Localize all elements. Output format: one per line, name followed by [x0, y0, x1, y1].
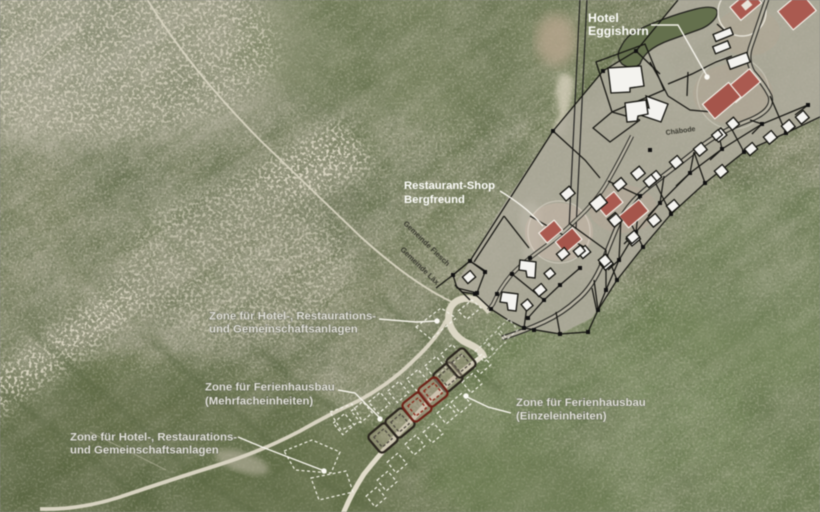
svg-text:Eggishorn: Eggishorn: [588, 24, 649, 38]
svg-text:(Mehrfacheinheiten): (Mehrfacheinheiten): [205, 396, 313, 408]
svg-text:(Einzeleinheiten): (Einzeleinheiten): [516, 411, 607, 423]
svg-text:und Gemeinschaftsanlagen: und Gemeinschaftsanlagen: [209, 324, 358, 336]
svg-text:und Gemeinschaftsanlagen: und Gemeinschaftsanlagen: [70, 445, 219, 457]
svg-text:Zone für Ferienhausbau: Zone für Ferienhausbau: [205, 382, 335, 394]
svg-text:Zone für Ferienhausbau: Zone für Ferienhausbau: [516, 397, 646, 409]
svg-text:Restaurant-Shop: Restaurant-Shop: [404, 180, 495, 192]
svg-text:Hotel: Hotel: [588, 11, 619, 25]
svg-text:Zone für Hotel-, Restaurations: Zone für Hotel-, Restaurations-: [209, 311, 376, 323]
svg-text:Bergfreund: Bergfreund: [404, 194, 465, 206]
svg-text:Zone für Hotel-, Restaurations: Zone für Hotel-, Restaurations-: [70, 432, 237, 444]
